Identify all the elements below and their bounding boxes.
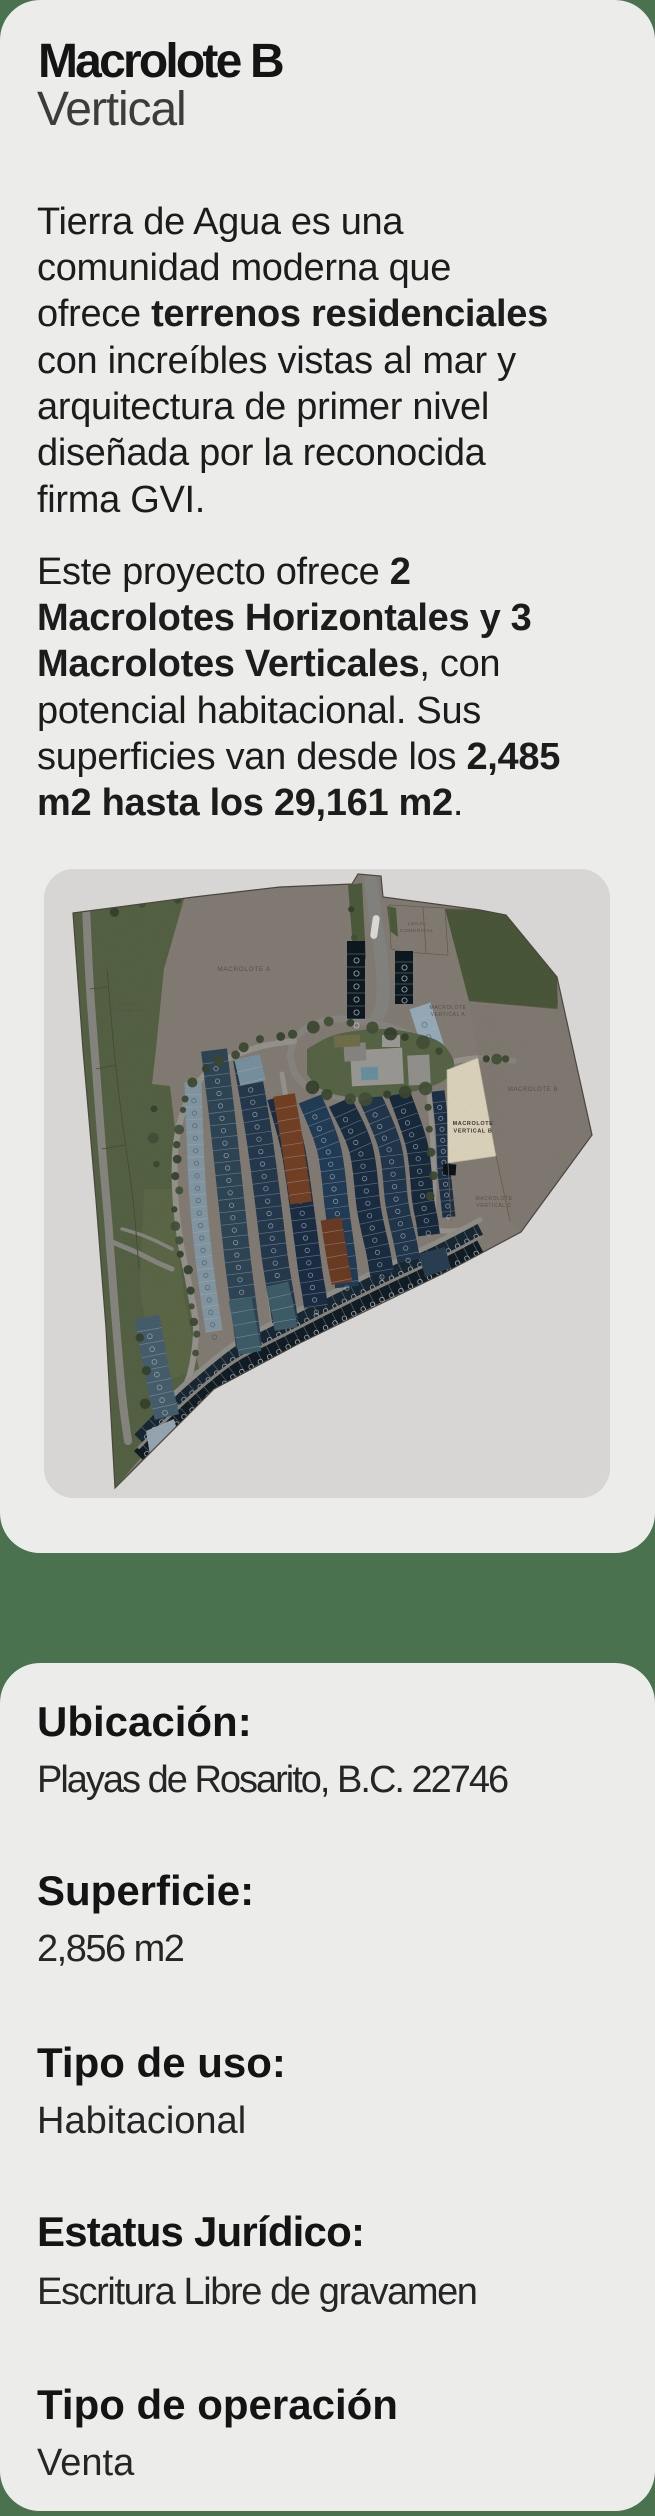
svg-text:MACROLOTEVERTICAL B: MACROLOTEVERTICAL B bbox=[453, 1121, 494, 1135]
svg-text:MACROLOTE A: MACROLOTE A bbox=[217, 966, 271, 973]
svg-text:MACROLOTEVERTICAL A: MACROLOTEVERTICAL A bbox=[429, 1005, 466, 1018]
svg-text:MACROLOTEVERTICAL C: MACROLOTEVERTICAL C bbox=[475, 1196, 512, 1209]
svg-text:MACROLOTE B: MACROLOTE B bbox=[508, 1087, 558, 1093]
